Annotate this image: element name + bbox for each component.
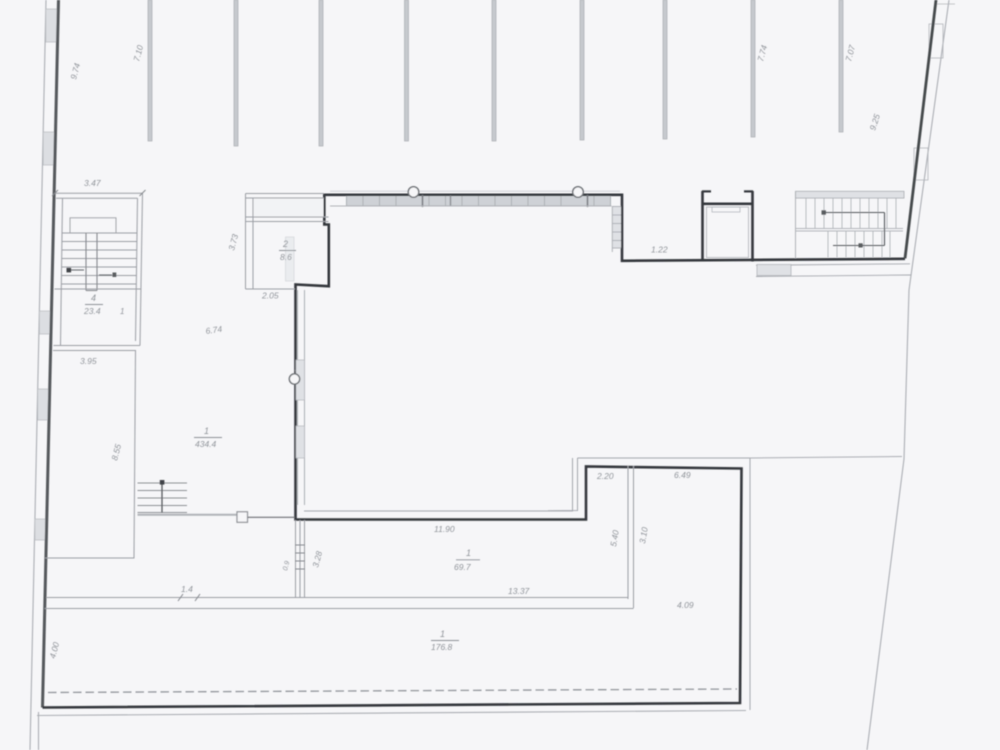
svg-text:2.05: 2.05 [261, 291, 279, 301]
svg-text:4.09: 4.09 [677, 600, 694, 610]
svg-text:69.7: 69.7 [454, 562, 471, 572]
svg-text:1: 1 [120, 307, 124, 316]
svg-text:11.90: 11.90 [434, 524, 455, 534]
svg-text:176.8: 176.8 [431, 642, 453, 652]
svg-text:1.4: 1.4 [181, 584, 193, 594]
svg-text:4: 4 [91, 293, 96, 303]
svg-text:2: 2 [282, 239, 288, 249]
svg-text:3.95: 3.95 [80, 356, 97, 366]
svg-text:1: 1 [466, 548, 471, 558]
svg-text:13.37: 13.37 [508, 586, 530, 596]
svg-text:1: 1 [440, 629, 445, 639]
svg-text:1.22: 1.22 [651, 245, 668, 255]
svg-text:8.6: 8.6 [280, 252, 292, 262]
svg-text:23.4: 23.4 [83, 306, 101, 316]
svg-text:3.47: 3.47 [84, 178, 101, 188]
svg-text:434.4: 434.4 [195, 439, 217, 449]
svg-text:1: 1 [204, 426, 209, 436]
svg-text:6.49: 6.49 [674, 470, 691, 480]
svg-text:2.20: 2.20 [596, 471, 614, 481]
